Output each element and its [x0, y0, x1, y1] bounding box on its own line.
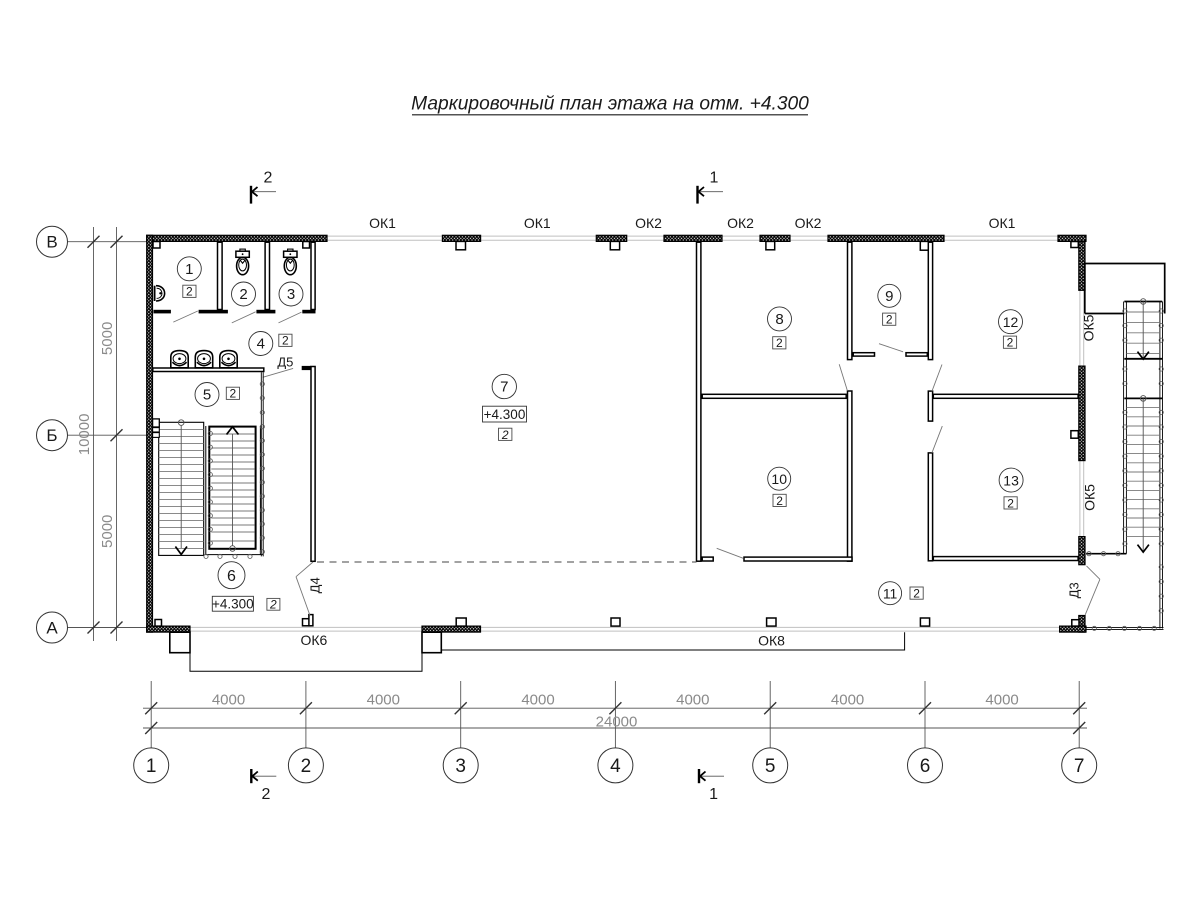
svg-text:4000: 4000	[367, 692, 400, 709]
svg-text:ОК1: ОК1	[524, 215, 551, 231]
svg-text:4000: 4000	[985, 692, 1018, 709]
svg-text:А: А	[46, 619, 58, 638]
svg-text:3: 3	[455, 756, 466, 777]
svg-text:ОК2: ОК2	[727, 215, 754, 231]
svg-text:10000: 10000	[76, 414, 93, 456]
svg-text:ОК1: ОК1	[989, 215, 1016, 231]
svg-text:6: 6	[920, 756, 931, 777]
svg-text:2: 2	[886, 313, 893, 327]
svg-text:+4.300: +4.300	[212, 597, 254, 612]
svg-text:2: 2	[186, 285, 193, 299]
svg-text:2: 2	[269, 598, 277, 612]
svg-text:В: В	[46, 233, 57, 252]
svg-text:Маркировочный план этажа на от: Маркировочный план этажа на отм. +4.300	[411, 94, 809, 115]
svg-text:2: 2	[776, 336, 783, 350]
svg-text:1: 1	[709, 786, 718, 803]
svg-text:2: 2	[776, 494, 783, 508]
svg-text:7: 7	[500, 379, 508, 396]
svg-text:4000: 4000	[676, 692, 709, 709]
svg-text:ОК1: ОК1	[369, 215, 396, 231]
svg-text:ОК2: ОК2	[795, 215, 822, 231]
svg-text:2: 2	[1007, 496, 1014, 510]
svg-text:11: 11	[883, 585, 898, 601]
svg-text:9: 9	[885, 288, 893, 305]
svg-text:ОК5: ОК5	[1082, 484, 1098, 511]
svg-text:Д4: Д4	[308, 577, 323, 593]
svg-text:1: 1	[185, 261, 193, 278]
svg-text:2: 2	[230, 387, 237, 401]
svg-text:2: 2	[301, 756, 312, 777]
svg-text:1: 1	[146, 756, 157, 777]
svg-text:ОК6: ОК6	[300, 632, 327, 648]
svg-text:4: 4	[610, 756, 621, 777]
svg-text:ОК5: ОК5	[1081, 314, 1097, 341]
svg-text:6: 6	[227, 568, 236, 585]
svg-text:Д3: Д3	[1067, 582, 1082, 598]
svg-text:5: 5	[765, 756, 776, 777]
svg-text:Б: Б	[46, 426, 57, 445]
svg-text:2: 2	[264, 170, 273, 187]
svg-text:5000: 5000	[99, 322, 116, 355]
svg-text:5: 5	[203, 387, 211, 404]
svg-text:12: 12	[1003, 314, 1019, 330]
svg-text:ОК2: ОК2	[635, 215, 662, 231]
svg-text:4: 4	[257, 336, 265, 353]
svg-text:Д5: Д5	[277, 355, 293, 370]
svg-text:2: 2	[501, 428, 509, 442]
svg-text:4000: 4000	[212, 692, 245, 709]
svg-text:2: 2	[913, 587, 920, 601]
svg-text:10: 10	[771, 471, 787, 487]
svg-text:2: 2	[239, 286, 247, 303]
svg-text:4000: 4000	[831, 692, 864, 709]
svg-text:+4.300: +4.300	[484, 407, 526, 422]
svg-text:2: 2	[282, 334, 289, 348]
svg-text:2: 2	[1007, 336, 1014, 350]
svg-text:13: 13	[1003, 472, 1019, 488]
svg-text:8: 8	[775, 311, 783, 328]
svg-text:1: 1	[710, 170, 719, 187]
svg-text:4000: 4000	[521, 692, 554, 709]
svg-text:2: 2	[262, 786, 271, 803]
svg-text:3: 3	[287, 286, 295, 303]
svg-text:5000: 5000	[99, 515, 116, 548]
svg-text:ОК8: ОК8	[758, 633, 785, 649]
svg-text:7: 7	[1074, 756, 1085, 777]
svg-text:24000: 24000	[596, 714, 638, 731]
